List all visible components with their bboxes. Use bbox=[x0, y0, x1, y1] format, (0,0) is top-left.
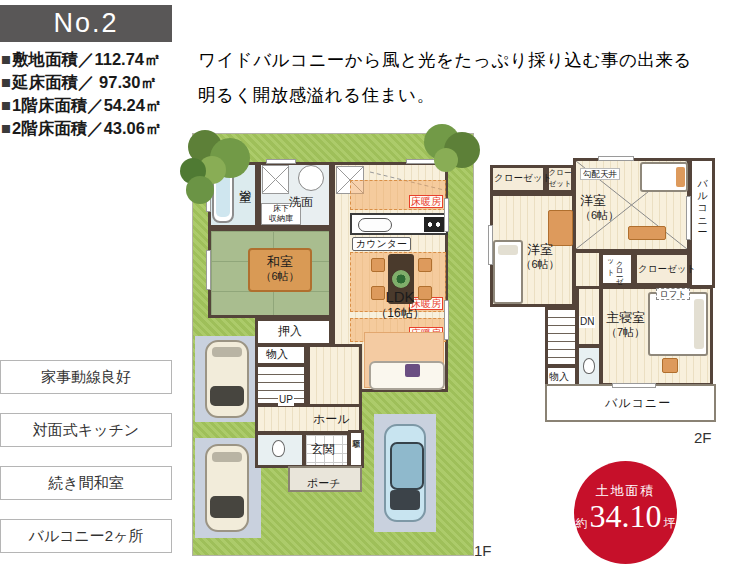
spec-label: 敷地面積／ bbox=[12, 50, 95, 68]
label-sloped-ceiling: 勾配天井 bbox=[580, 168, 620, 180]
badge-value: 34.10 bbox=[590, 500, 662, 532]
label-master-name: 主寝室 bbox=[606, 310, 645, 326]
spec-label: 延床面積／ bbox=[12, 73, 95, 91]
toilet-icon bbox=[583, 358, 595, 374]
car-rear-window bbox=[212, 452, 242, 462]
washing-machine-icon bbox=[262, 165, 289, 194]
tree-icon bbox=[186, 176, 214, 204]
car-windshield bbox=[210, 386, 244, 406]
car-icon bbox=[205, 444, 249, 532]
label-storage-1f: 物入 bbox=[266, 348, 288, 361]
label-storage-2f: 物入 bbox=[549, 371, 569, 383]
window bbox=[206, 250, 211, 290]
label-hall: ホール bbox=[313, 412, 350, 426]
label-western-top: 洋室 （6帖） bbox=[580, 193, 619, 222]
label-japanese-room: 和室 bbox=[250, 254, 310, 270]
window bbox=[488, 225, 493, 265]
pillow bbox=[694, 299, 704, 349]
label-western-room-size: （6帖） bbox=[505, 258, 575, 271]
feature-box-tatami: 続き間和室 bbox=[0, 466, 172, 500]
label-ldk-size: （16帖） bbox=[358, 306, 442, 320]
label-loft: ロフト bbox=[656, 288, 690, 300]
label-counter: カウンター bbox=[352, 237, 411, 251]
feature-label: 続き間和室 bbox=[48, 474, 123, 493]
feature-label: 対面式キッチン bbox=[33, 421, 139, 440]
spec-label: 2階床面積／ bbox=[12, 119, 104, 137]
label-dn: DN bbox=[579, 316, 595, 328]
heated-floor-area: 床暖房 bbox=[350, 180, 446, 210]
car-rear-window bbox=[212, 347, 242, 357]
bullet-icon: ■ bbox=[1, 119, 11, 137]
label-western-room-size: （6帖） bbox=[580, 209, 619, 222]
feature-box-balcony: バルコニー2ヶ所 bbox=[0, 519, 172, 553]
window bbox=[612, 383, 656, 388]
car-windshield bbox=[390, 490, 420, 510]
car-icon bbox=[205, 340, 249, 418]
bullet-icon: ■ bbox=[1, 73, 11, 91]
feature-box-kitchen: 対面式キッチン bbox=[0, 413, 172, 447]
window bbox=[686, 196, 691, 240]
bed bbox=[648, 292, 708, 356]
label-closet-vertical: クローゼット bbox=[606, 255, 624, 283]
toilet-icon bbox=[272, 440, 285, 457]
label-closet-tl: クローゼット bbox=[494, 172, 552, 183]
spec-label: 1階床面積／ bbox=[12, 96, 104, 114]
plan-number-text: No.2 bbox=[53, 8, 118, 39]
land-area-badge: 土地面積 約 34.10 坪 bbox=[574, 461, 677, 564]
label-closet-mid: クローゼット bbox=[638, 263, 696, 274]
kitchen-counter bbox=[350, 213, 448, 235]
sink-icon bbox=[298, 165, 324, 191]
window bbox=[444, 300, 449, 340]
stairs-down bbox=[545, 307, 578, 367]
feature-box-housework-flow: 家事動線良好 bbox=[0, 360, 172, 394]
feature-label: 家事動線良好 bbox=[41, 368, 131, 387]
pillow bbox=[676, 167, 685, 187]
chair bbox=[418, 258, 432, 272]
spec-1f-area: ■1階床面積／54.24㎡ bbox=[1, 95, 161, 117]
spec-value: 54.24㎡ bbox=[104, 96, 162, 114]
window bbox=[598, 156, 634, 161]
living-rug bbox=[364, 332, 444, 388]
shoe-cabinet bbox=[348, 430, 364, 468]
label-bath: 浴室 bbox=[238, 180, 252, 182]
label-porch: ポーチ bbox=[307, 477, 341, 490]
floor-label-2f: 2F bbox=[694, 429, 712, 446]
label-japanese-room-size: （6帖） bbox=[250, 270, 310, 283]
low-table: 和室 （6帖） bbox=[248, 248, 312, 292]
label-master-size: （7帖） bbox=[606, 326, 645, 339]
car-icon bbox=[384, 424, 426, 522]
description-line-2: 明るく開放感溢れる住まい。 bbox=[198, 83, 434, 107]
spec-2f-area: ■2階床面積／43.06㎡ bbox=[1, 118, 161, 140]
car-windshield bbox=[210, 496, 244, 518]
window bbox=[406, 159, 436, 164]
spec-total-floor-area: ■延床面積／ 97.30㎡ bbox=[1, 72, 157, 94]
description-line-1: ワイドバルコニーから風と光をたっぷり採り込む事の出来る bbox=[198, 48, 692, 72]
desk bbox=[548, 210, 573, 246]
badge-approx: 約 bbox=[576, 517, 588, 529]
label-western-left: 洋室 （6帖） bbox=[505, 242, 575, 271]
spec-site-area: ■敷地面積／112.74㎡ bbox=[1, 49, 161, 71]
label-ldk: LDK （16帖） bbox=[358, 288, 442, 320]
bed bbox=[640, 162, 688, 192]
spec-value: 97.30㎡ bbox=[94, 73, 156, 91]
label-washroom: 洗面 bbox=[289, 195, 313, 209]
label-balcony-side: バルコニー bbox=[696, 172, 708, 227]
label-entrance: 玄関 bbox=[311, 442, 335, 456]
label-up: UP bbox=[278, 394, 294, 406]
label-floor-heating: 床暖房 bbox=[409, 195, 443, 208]
desk bbox=[662, 358, 678, 373]
kitchen-sink-icon bbox=[358, 218, 392, 232]
car-glass-roof bbox=[390, 442, 424, 490]
bullet-icon: ■ bbox=[1, 96, 11, 114]
label-ldk-name: LDK bbox=[358, 288, 442, 306]
label-oshiire: 押入 bbox=[278, 324, 302, 338]
window bbox=[444, 198, 449, 232]
bullet-icon: ■ bbox=[1, 50, 11, 68]
label-closet-small: クローゼット bbox=[548, 168, 572, 189]
spec-value: 112.74㎡ bbox=[94, 50, 160, 68]
tree-icon bbox=[434, 148, 458, 172]
chair bbox=[371, 258, 385, 272]
window bbox=[266, 159, 296, 164]
plant-icon bbox=[392, 270, 410, 288]
floor-label-1f: 1F bbox=[474, 542, 492, 559]
label-western-room: 洋室 bbox=[505, 242, 575, 258]
stove-icon bbox=[424, 217, 444, 232]
cushion bbox=[405, 364, 420, 377]
label-master-bedroom: 主寝室 （7帖） bbox=[606, 310, 645, 339]
spec-value: 43.06㎡ bbox=[104, 119, 162, 137]
label-balcony-bottom: バルコニー bbox=[605, 396, 671, 410]
desk bbox=[628, 226, 666, 240]
page: No.2 ■敷地面積／112.74㎡ ■延床面積／ 97.30㎡ ■1階床面積／… bbox=[0, 0, 750, 588]
plan-number-badge: No.2 bbox=[0, 5, 172, 42]
feature-label: バルコニー2ヶ所 bbox=[28, 527, 143, 546]
label-underfloor-2: 収納庫 bbox=[262, 214, 300, 224]
badge-unit: 坪 bbox=[664, 517, 676, 529]
label-western-room: 洋室 bbox=[580, 193, 619, 209]
